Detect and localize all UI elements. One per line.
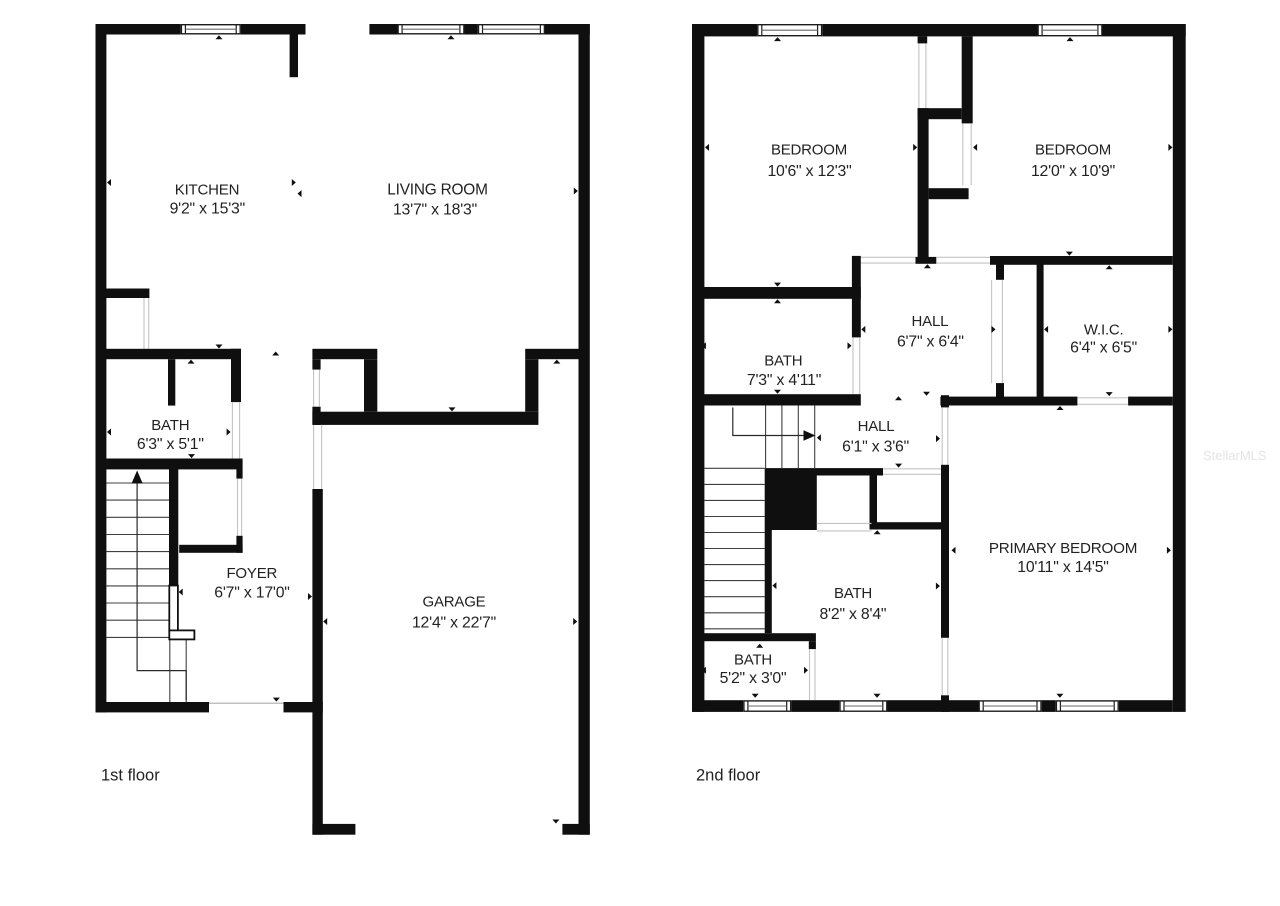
svg-text:BEDROOM: BEDROOM <box>1035 142 1111 159</box>
svg-text:1st floor: 1st floor <box>101 766 160 784</box>
svg-text:12'0" x 10'9": 12'0" x 10'9" <box>1031 163 1115 180</box>
svg-text:6'7" x 6'4": 6'7" x 6'4" <box>897 334 964 351</box>
svg-text:8'2" x 8'4": 8'2" x 8'4" <box>819 606 886 623</box>
svg-text:StellarMLS: StellarMLS <box>1203 448 1267 463</box>
svg-text:6'3" x 5'1": 6'3" x 5'1" <box>137 436 204 453</box>
svg-text:PRIMARY BEDROOM: PRIMARY BEDROOM <box>989 540 1137 557</box>
svg-text:5'2" x 3'0": 5'2" x 3'0" <box>720 670 787 687</box>
svg-text:12'4" x 22'7": 12'4" x 22'7" <box>412 614 496 631</box>
svg-text:2nd floor: 2nd floor <box>696 766 761 784</box>
svg-text:BATH: BATH <box>734 651 772 668</box>
svg-text:BATH: BATH <box>151 417 189 434</box>
svg-text:GARAGE: GARAGE <box>423 593 486 610</box>
svg-text:13'7" x 18'3": 13'7" x 18'3" <box>393 202 477 219</box>
svg-text:7'3" x 4'11": 7'3" x 4'11" <box>747 372 821 389</box>
svg-text:BATH: BATH <box>764 352 802 369</box>
svg-text:W.I.C.: W.I.C. <box>1084 321 1124 338</box>
svg-text:BEDROOM: BEDROOM <box>771 142 847 159</box>
svg-text:6'7" x 17'0": 6'7" x 17'0" <box>214 585 289 602</box>
svg-text:9'2" x 15'3": 9'2" x 15'3" <box>170 201 245 218</box>
svg-text:6'1" x 3'6": 6'1" x 3'6" <box>842 438 909 455</box>
svg-text:HALL: HALL <box>858 418 895 435</box>
svg-text:LIVING ROOM: LIVING ROOM <box>387 182 487 199</box>
svg-text:6'4" x 6'5": 6'4" x 6'5" <box>1070 340 1137 357</box>
svg-text:10'6" x 12'3": 10'6" x 12'3" <box>767 163 851 180</box>
svg-text:HALL: HALL <box>912 313 949 330</box>
svg-text:BATH: BATH <box>834 585 872 602</box>
svg-text:KITCHEN: KITCHEN <box>175 181 239 198</box>
svg-text:FOYER: FOYER <box>226 565 277 582</box>
svg-text:10'11" x 14'5": 10'11" x 14'5" <box>1017 559 1108 576</box>
